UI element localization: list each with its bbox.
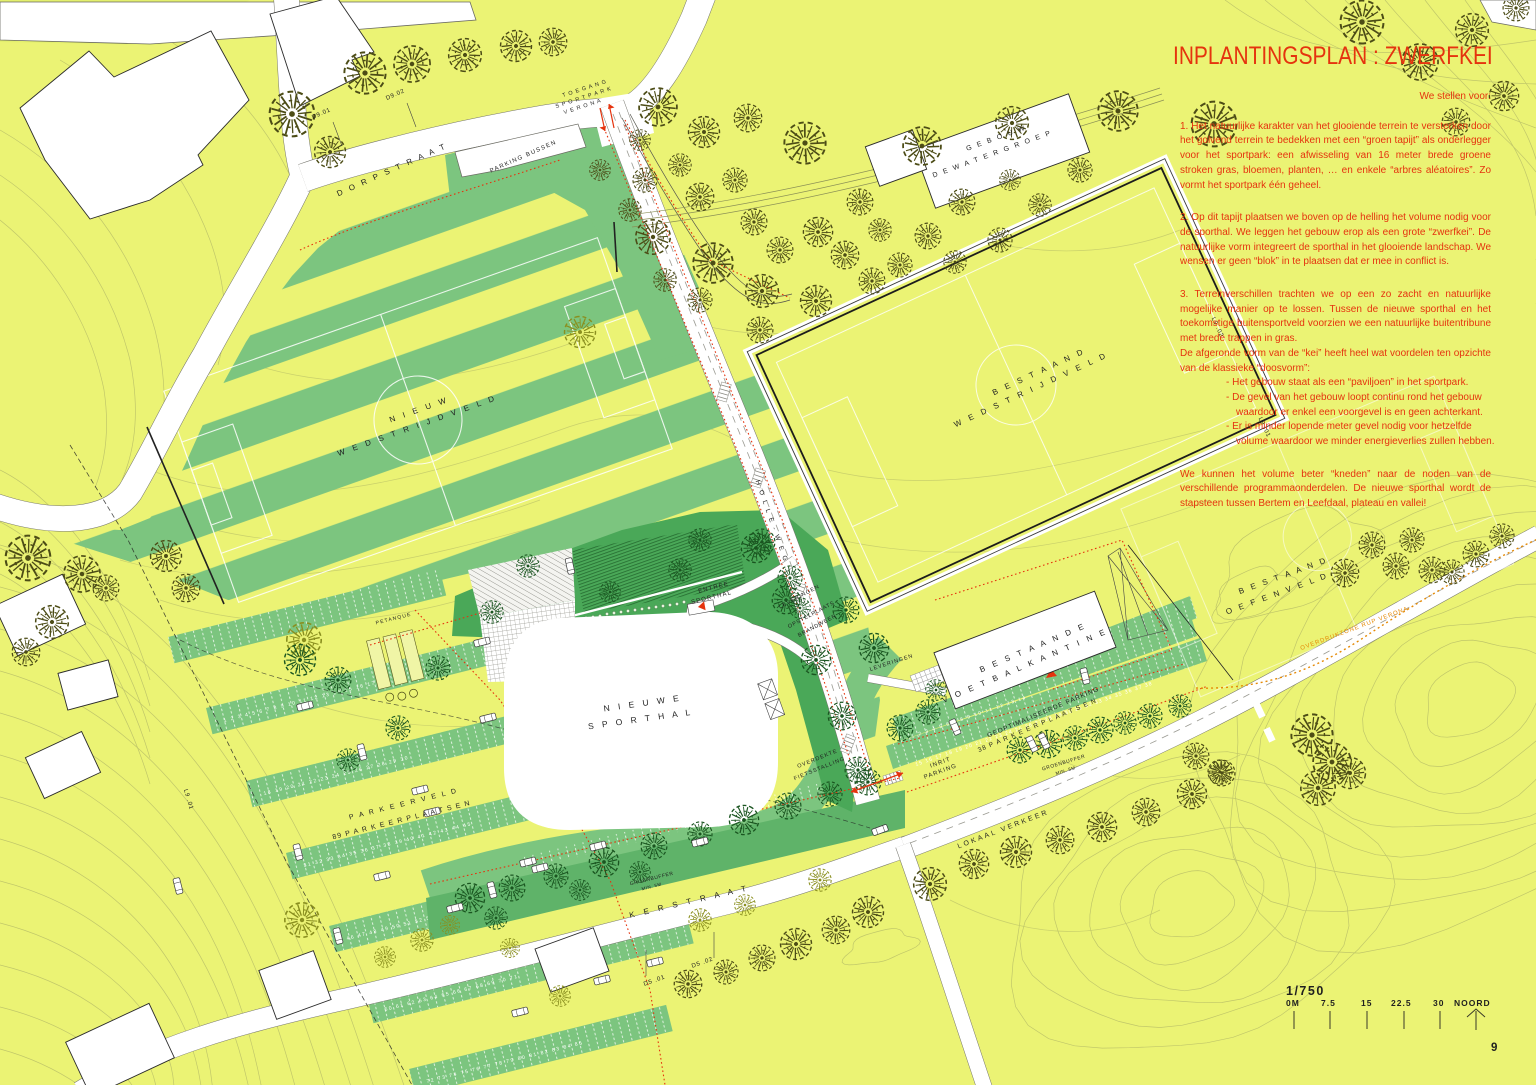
svg-text:1/750: 1/750	[1286, 984, 1325, 998]
svg-text:7.5: 7.5	[1321, 998, 1336, 1008]
svg-text:22.5: 22.5	[1391, 998, 1412, 1008]
svg-text:15: 15	[1361, 998, 1372, 1008]
svg-text:9: 9	[1491, 1042, 1497, 1054]
svg-text:NOORD: NOORD	[1454, 998, 1491, 1008]
svg-text:30: 30	[1433, 998, 1444, 1008]
svg-text:0M: 0M	[1286, 998, 1300, 1008]
